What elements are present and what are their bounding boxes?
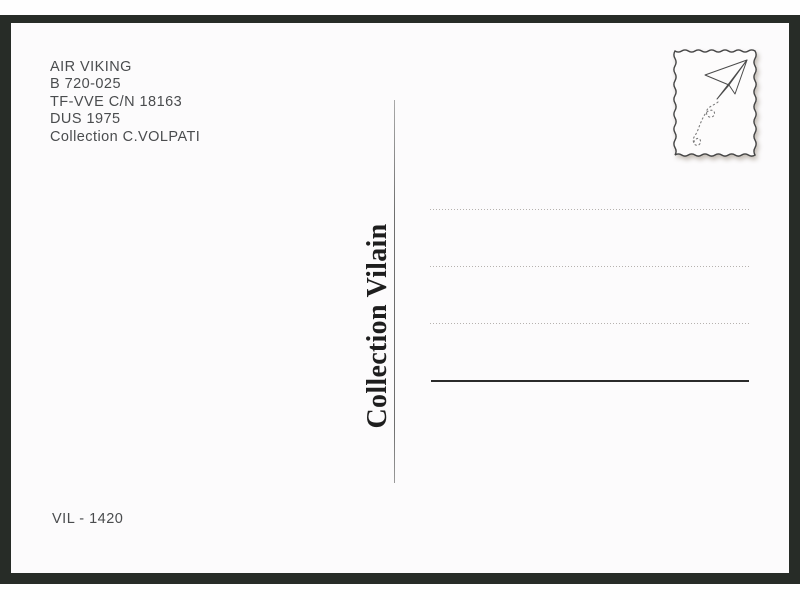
paper-plane-icon — [668, 43, 762, 163]
collection-credit: Collection C.VOLPATI — [50, 129, 200, 146]
address-line-1 — [430, 209, 750, 210]
center-divider-line — [394, 100, 395, 483]
stamp-box — [668, 43, 762, 163]
airline-name: AIR VIKING — [50, 59, 200, 76]
registration-serial: TF-VVE C/N 18163 — [50, 94, 200, 111]
location-year: DUS 1975 — [50, 111, 200, 128]
address-line-2 — [430, 266, 750, 267]
address-line-3 — [430, 323, 750, 324]
address-line-solid — [431, 380, 749, 382]
publisher-label: Collection Vilain — [362, 224, 394, 429]
aircraft-info-block: AIR VIKING B 720-025 TF-VVE C/N 18163 DU… — [50, 59, 200, 146]
postcard-back: AIR VIKING B 720-025 TF-VVE C/N 18163 DU… — [11, 23, 789, 573]
aircraft-type: B 720-025 — [50, 76, 200, 93]
scanned-postcard-photo: AIR VIKING B 720-025 TF-VVE C/N 18163 DU… — [0, 0, 800, 600]
catalog-number: VIL - 1420 — [52, 511, 123, 527]
